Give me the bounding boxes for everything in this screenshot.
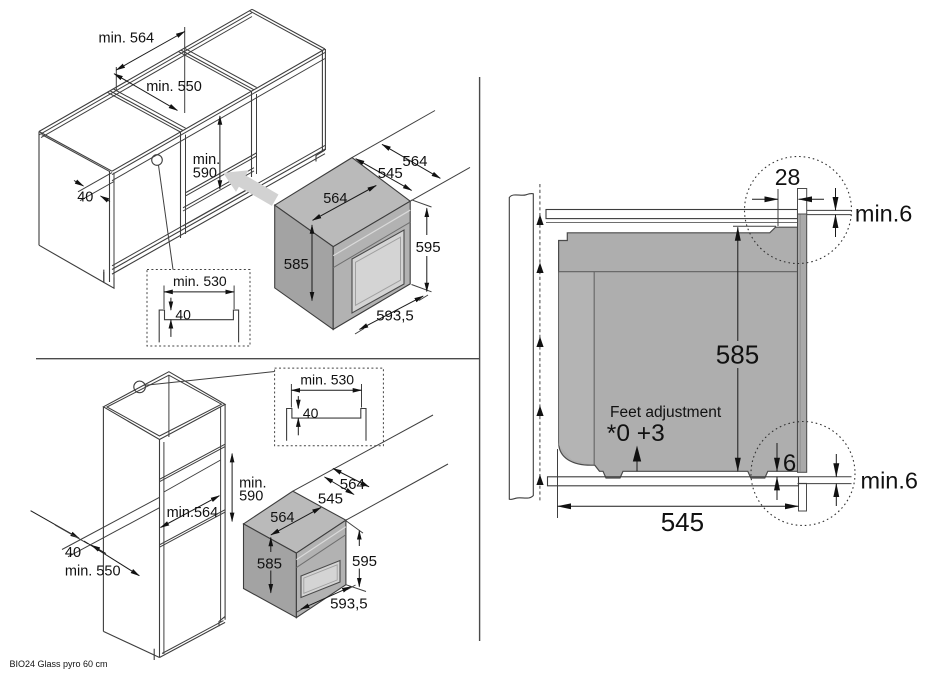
svg-text:40: 40 — [65, 545, 81, 561]
svg-text:6: 6 — [783, 450, 796, 477]
svg-text:590: 590 — [193, 166, 217, 182]
svg-text:min.6: min.6 — [855, 201, 912, 227]
svg-text:593,5: 593,5 — [376, 307, 414, 324]
svg-text:585: 585 — [257, 556, 282, 573]
svg-text:min. 530: min. 530 — [173, 273, 227, 289]
svg-text:BIO24 Glass pyro 60 cm: BIO24 Glass pyro 60 cm — [10, 659, 108, 669]
svg-text:595: 595 — [416, 239, 441, 256]
svg-text:564: 564 — [402, 153, 427, 170]
svg-text:min. 530: min. 530 — [300, 371, 354, 387]
svg-text:585: 585 — [716, 340, 759, 370]
svg-text:595: 595 — [352, 553, 377, 570]
svg-text:min.6: min.6 — [861, 468, 918, 494]
svg-text:564: 564 — [323, 191, 347, 207]
svg-text:*0 +3: *0 +3 — [607, 420, 665, 447]
svg-text:40: 40 — [175, 307, 191, 323]
svg-text:min.564: min.564 — [167, 505, 219, 521]
svg-text:40: 40 — [77, 189, 93, 205]
svg-text:Feet adjustment: Feet adjustment — [610, 404, 722, 421]
svg-text:40: 40 — [303, 405, 319, 421]
svg-text:min. 564: min. 564 — [99, 31, 155, 47]
svg-text:590: 590 — [239, 488, 263, 504]
svg-text:min. 550: min. 550 — [65, 564, 121, 580]
svg-text:585: 585 — [284, 256, 309, 273]
svg-text:564: 564 — [270, 510, 294, 526]
svg-text:min. 550: min. 550 — [146, 79, 202, 95]
svg-text:545: 545 — [378, 165, 403, 182]
svg-text:28: 28 — [775, 164, 801, 190]
svg-text:545: 545 — [661, 507, 704, 537]
svg-text:593,5: 593,5 — [330, 596, 368, 613]
svg-text:564: 564 — [340, 476, 365, 493]
